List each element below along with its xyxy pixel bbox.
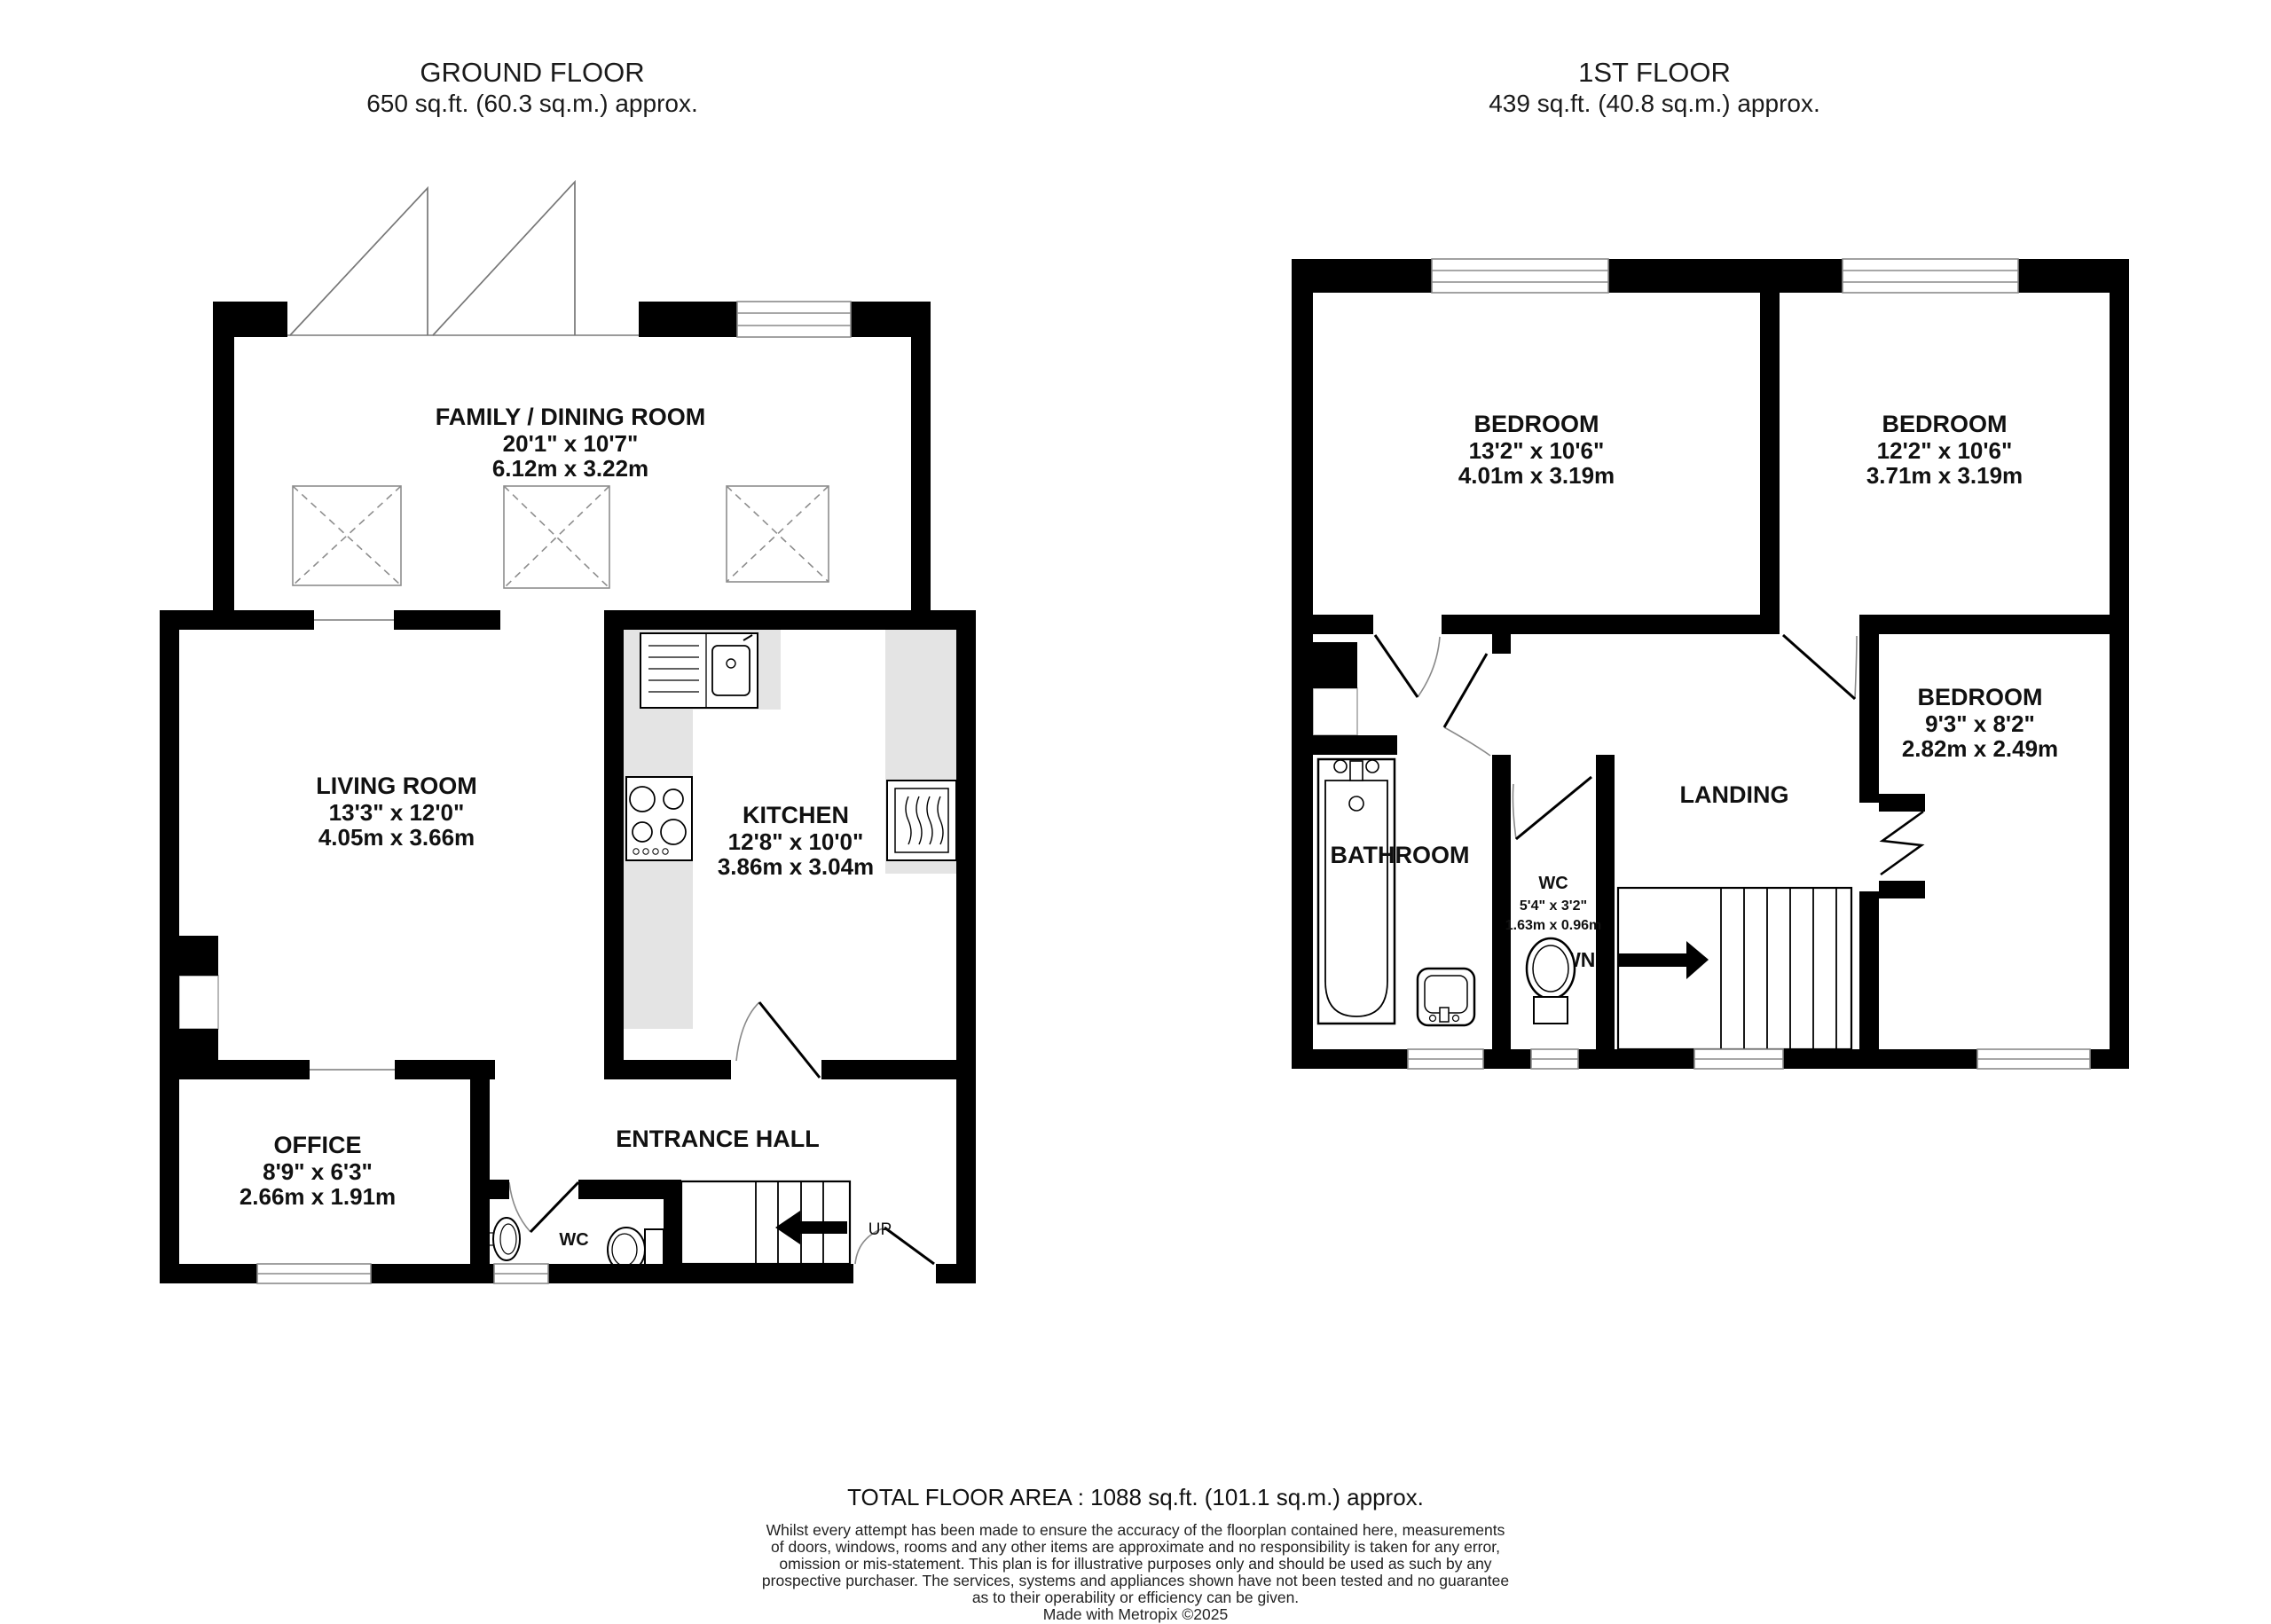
wc-first-metric: 1.63m x 0.96m	[1505, 918, 1602, 933]
bathroom-sink-icon	[1418, 969, 1474, 1025]
stairs-down	[1618, 888, 1851, 1049]
landing-label: LANDING	[1680, 781, 1789, 808]
wc-ground-label: WC	[559, 1230, 588, 1250]
disclaimer-line-3: omission or mis-statement. This plan is …	[779, 1555, 1491, 1573]
wc-first-toilet-icon	[1527, 938, 1575, 1024]
bedroom2-door-arc	[1855, 636, 1857, 699]
footer: TOTAL FLOOR AREA : 1088 sq.ft. (101.1 sq…	[762, 1484, 1509, 1623]
family-room-name: FAMILY / DINING ROOM	[436, 404, 706, 430]
front-door-leaf	[884, 1228, 934, 1264]
kitchen-imperial: 12'8" x 10'0"	[728, 828, 864, 855]
bedroom3-metric: 2.82m x 2.49m	[1902, 735, 2058, 762]
first-floor-plan: 1ST FLOOR 439 sq.ft. (40.8 sq.m.) approx…	[1292, 57, 2129, 1069]
family-room-metric: 6.12m x 3.22m	[492, 455, 648, 482]
stairs-up	[681, 1181, 850, 1264]
office-metric: 2.66m x 1.91m	[240, 1183, 396, 1210]
ground-floor-subtitle: 650 sq.ft. (60.3 sq.m.) approx.	[366, 90, 698, 117]
ground-room-labels: FAMILY / DINING ROOM 20'1" x 10'7" 6.12m…	[240, 404, 892, 1250]
first-floor-recess	[1313, 688, 1357, 735]
credit-line: Made with Metropix ©2025	[1043, 1605, 1228, 1623]
office-imperial: 8'9" x 6'3"	[263, 1158, 373, 1185]
disclaimer-line-1: Whilst every attempt has been made to en…	[766, 1521, 1505, 1539]
bedroom1-window	[1432, 259, 1608, 293]
wc-sink-icon	[489, 1218, 520, 1260]
skylight-icons	[293, 486, 829, 588]
stairs-up-arrow-shaft	[800, 1221, 847, 1234]
living-room-imperial: 13'3" x 12'0"	[329, 799, 465, 826]
living-room-name: LIVING ROOM	[316, 773, 477, 799]
kitchen-name: KITCHEN	[743, 802, 849, 828]
floorplan-page: GROUND FLOOR 650 sq.ft. (60.3 sq.m.) app…	[0, 0, 2271, 1624]
disclaimer-line-4: prospective purchaser. The services, sys…	[762, 1572, 1509, 1589]
bedroom1-door-leaf	[1375, 635, 1418, 697]
living-room-metric: 4.05m x 3.66m	[318, 824, 475, 851]
wc-first-name: WC	[1538, 874, 1568, 893]
bedroom2-metric: 3.71m x 3.19m	[1866, 462, 2023, 489]
family-room-imperial: 20'1" x 10'7"	[503, 430, 639, 457]
stairs-down-arrow-shaft	[1618, 953, 1686, 967]
wc-first-door-arc	[1513, 784, 1516, 839]
hob-icon	[626, 777, 692, 860]
bedroom2-door-leaf	[1783, 635, 1855, 699]
bedroom1-imperial: 13'2" x 10'6"	[1469, 437, 1605, 464]
bedroom3-name: BEDROOM	[1918, 684, 2043, 710]
ground-floor-plan: GROUND FLOOR 650 sq.ft. (60.3 sq.m.) app…	[160, 57, 976, 1283]
kitchen-door-leaf	[759, 1002, 820, 1078]
entrance-hall-label: ENTRANCE HALL	[616, 1126, 820, 1152]
chimney-breast	[179, 936, 218, 976]
office-name: OFFICE	[274, 1132, 362, 1158]
kitchen-sink-icon	[640, 633, 758, 708]
bedroom3-imperial: 9'3" x 8'2"	[1925, 710, 2035, 737]
oven-icon	[887, 781, 956, 860]
up-label: UP	[868, 1220, 892, 1239]
disclaimer-line-2: of doors, windows, rooms and any other i…	[771, 1538, 1500, 1556]
bedroom2-imperial: 12'2" x 10'6"	[1877, 437, 2013, 464]
living-room-recess	[179, 976, 218, 1029]
first-floor-subtitle: 439 sq.ft. (40.8 sq.m.) approx.	[1489, 90, 1820, 117]
kitchen-metric: 3.86m x 3.04m	[718, 853, 874, 880]
bathroom-label: BATHROOM	[1331, 842, 1470, 868]
first-floor-title: 1ST FLOOR	[1578, 57, 1731, 88]
bedroom1-metric: 4.01m x 3.19m	[1458, 462, 1615, 489]
total-floor-area: TOTAL FLOOR AREA : 1088 sq.ft. (101.1 sq…	[847, 1484, 1424, 1510]
bathroom-door-leaf	[1444, 654, 1487, 727]
wc-door-leaf	[530, 1182, 578, 1232]
bedroom2-name: BEDROOM	[1882, 411, 2008, 437]
family-room-window	[737, 302, 851, 337]
disclaimer-line-5: as to their operability or efficiency ca…	[972, 1589, 1299, 1606]
wc-first-imperial: 5'4" x 3'2"	[1520, 898, 1587, 914]
floorplan-canvas: GROUND FLOOR 650 sq.ft. (60.3 sq.m.) app…	[0, 0, 2271, 1624]
ground-floor-title: GROUND FLOOR	[420, 57, 644, 88]
kitchen-door-arc	[736, 1002, 759, 1061]
wc-first-door-leaf	[1516, 777, 1591, 839]
bedroom1-door-arc	[1418, 637, 1440, 697]
chimney-breast-first	[1313, 642, 1357, 688]
bifold-door-icon	[290, 182, 575, 335]
bedroom2-window	[1843, 259, 2018, 293]
bedroom1-name: BEDROOM	[1474, 411, 1599, 437]
bedroom3-bifold-door	[1881, 812, 1923, 875]
bathroom-door-arc	[1444, 727, 1490, 756]
bathtub-icon	[1318, 759, 1395, 1024]
first-room-labels: BEDROOM 13'2" x 10'6" 4.01m x 3.19m BEDR…	[1331, 411, 2059, 933]
